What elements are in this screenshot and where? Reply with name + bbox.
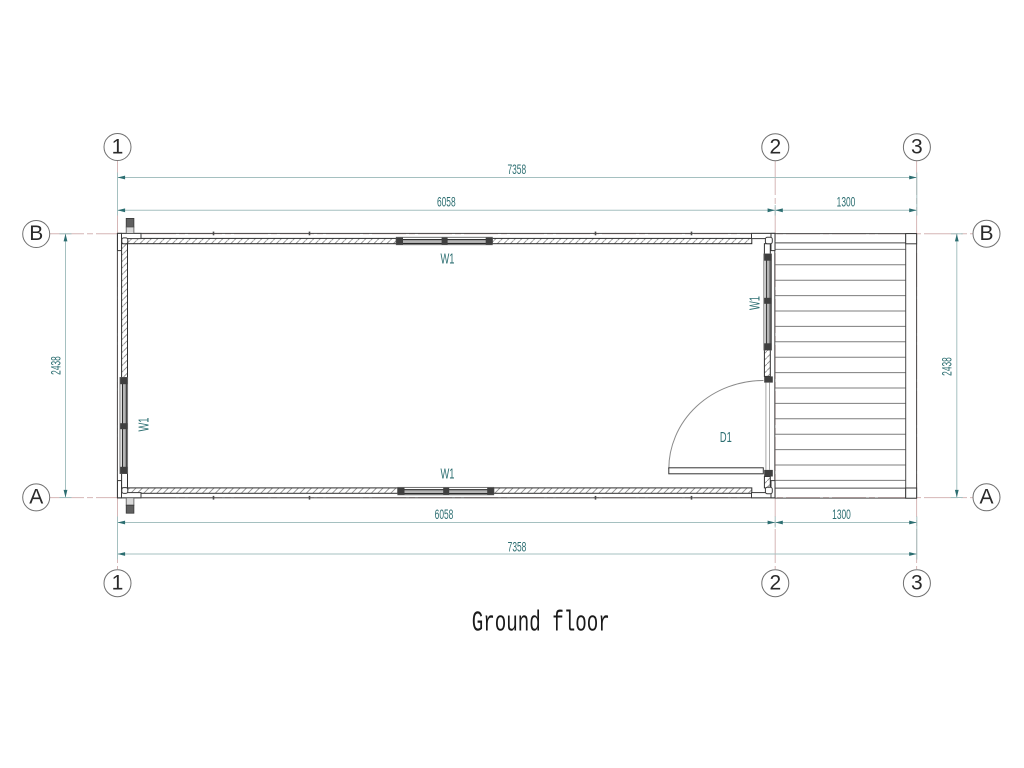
- svg-text:A: A: [979, 486, 993, 509]
- svg-text:Ground floor: Ground floor: [472, 608, 610, 640]
- svg-text:W1: W1: [441, 250, 455, 267]
- svg-text:3: 3: [911, 571, 923, 594]
- svg-text:7358: 7358: [508, 541, 527, 556]
- svg-text:3: 3: [911, 135, 923, 158]
- svg-text:6058: 6058: [435, 508, 454, 523]
- svg-text:2: 2: [769, 571, 781, 594]
- svg-text:A: A: [29, 486, 43, 509]
- svg-text:2438: 2438: [50, 356, 65, 375]
- svg-text:6058: 6058: [437, 196, 456, 211]
- svg-text:1: 1: [112, 571, 124, 594]
- svg-text:W1: W1: [441, 465, 455, 482]
- svg-text:B: B: [979, 222, 993, 245]
- svg-text:W1: W1: [135, 417, 152, 431]
- svg-text:1300: 1300: [837, 196, 856, 211]
- svg-text:1: 1: [112, 135, 124, 158]
- svg-text:7358: 7358: [507, 163, 526, 178]
- svg-text:B: B: [29, 222, 43, 245]
- svg-text:2438: 2438: [941, 357, 956, 376]
- svg-text:2: 2: [769, 135, 781, 158]
- svg-text:D1: D1: [720, 429, 732, 446]
- svg-text:1300: 1300: [832, 508, 851, 523]
- svg-text:W1: W1: [746, 296, 763, 310]
